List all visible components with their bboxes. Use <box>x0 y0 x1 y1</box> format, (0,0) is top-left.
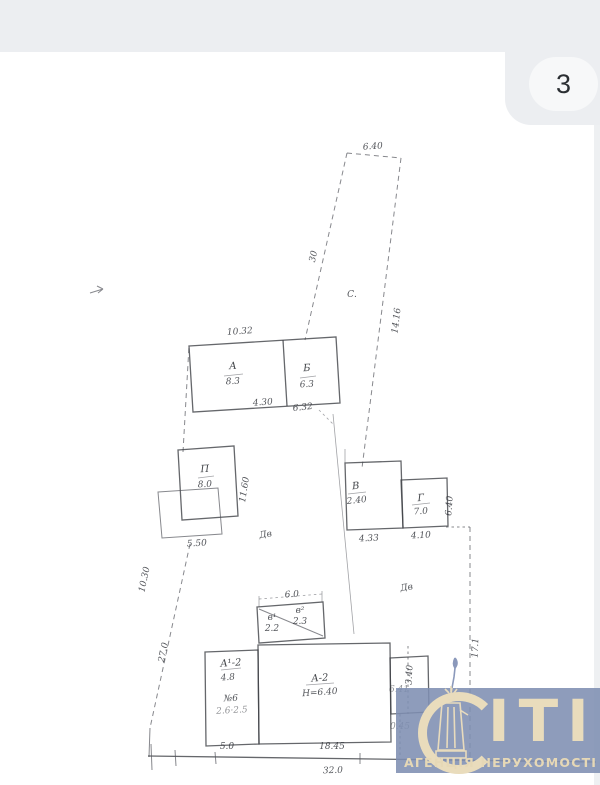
dim-building-g-bottom: 4.10 <box>410 530 432 541</box>
statue-of-liberty-icon <box>428 655 484 770</box>
photo-counter-value: 3 <box>556 69 571 100</box>
garden-mark: С. <box>347 290 357 300</box>
dim-wedge-left: 30 <box>308 250 320 264</box>
photo-counter-badge: 3 <box>529 57 598 111</box>
building-v-letter: В <box>351 481 360 493</box>
house-letter: А-2 <box>310 672 329 684</box>
house-height: Н=6.40 <box>301 687 338 700</box>
building-a-value: 8.3 <box>225 377 240 388</box>
watermark-brand-text: ІТІ <box>488 682 598 760</box>
annex-label: А¹-2 <box>219 657 242 670</box>
building-g-letter: Г <box>416 493 425 505</box>
dim-small-box: 3.40 <box>404 664 415 685</box>
shed-right-value: 2.3 <box>292 617 308 627</box>
dim-annex-bottom: 5.0 <box>220 742 235 752</box>
building-p-value: 8.0 <box>197 480 212 491</box>
dim-building-p-side: 11.60 <box>238 476 252 503</box>
dim-building-v-bottom: 4.33 <box>358 533 380 544</box>
dim-building-g-side: 6.40 <box>444 495 455 516</box>
building-a-letter: А <box>228 361 237 372</box>
site-plan-drawing: 6.40 30 14.16 С. 10.32 А 8.3 Б 6.3 4.30 … <box>0 0 600 785</box>
shed-left-value: 2.2 <box>264 624 280 634</box>
dim-shed-top: 6.0 <box>284 589 299 600</box>
building-p-letter: П <box>199 464 210 476</box>
dim-block-top: 10.32 <box>227 326 254 338</box>
dim-top-width: 6.40 <box>363 141 384 152</box>
dim-building-b-bottom: 6.32 <box>292 402 313 414</box>
shed-right-letter: в² <box>296 606 305 616</box>
building-b-value: 6.3 <box>299 380 314 391</box>
shed-left-letter: в¹ <box>268 613 277 623</box>
dim-house-bottom: 18.45 <box>319 742 345 752</box>
annex-value: 4.8 <box>219 672 235 683</box>
building-g-value: 7.0 <box>413 506 428 517</box>
building-v-value: 2.40 <box>345 495 367 507</box>
building-b-letter: Б <box>302 363 312 374</box>
annex-number: №6 <box>223 694 239 705</box>
plan-boundary-lines <box>90 153 596 770</box>
dim-building-a-bottom: 4.30 <box>252 397 274 408</box>
yard-mark-2: Дв <box>399 582 414 594</box>
dim-wedge-right: 14.16 <box>390 307 403 334</box>
dim-building-p-bottom: 5.50 <box>187 538 208 549</box>
dim-left-boundary-1: 10.30 <box>137 566 152 594</box>
annex-extra: 2.6·2.5 <box>215 705 248 717</box>
agency-watermark: ІТІ АГЕНЦІЯ НЕРУХОМОСТІ <box>396 688 600 773</box>
yard-mark-1: Дв <box>258 529 273 541</box>
dim-bottom-total: 32.0 <box>323 766 344 777</box>
dim-left-boundary-2: 27.0 <box>157 641 171 664</box>
